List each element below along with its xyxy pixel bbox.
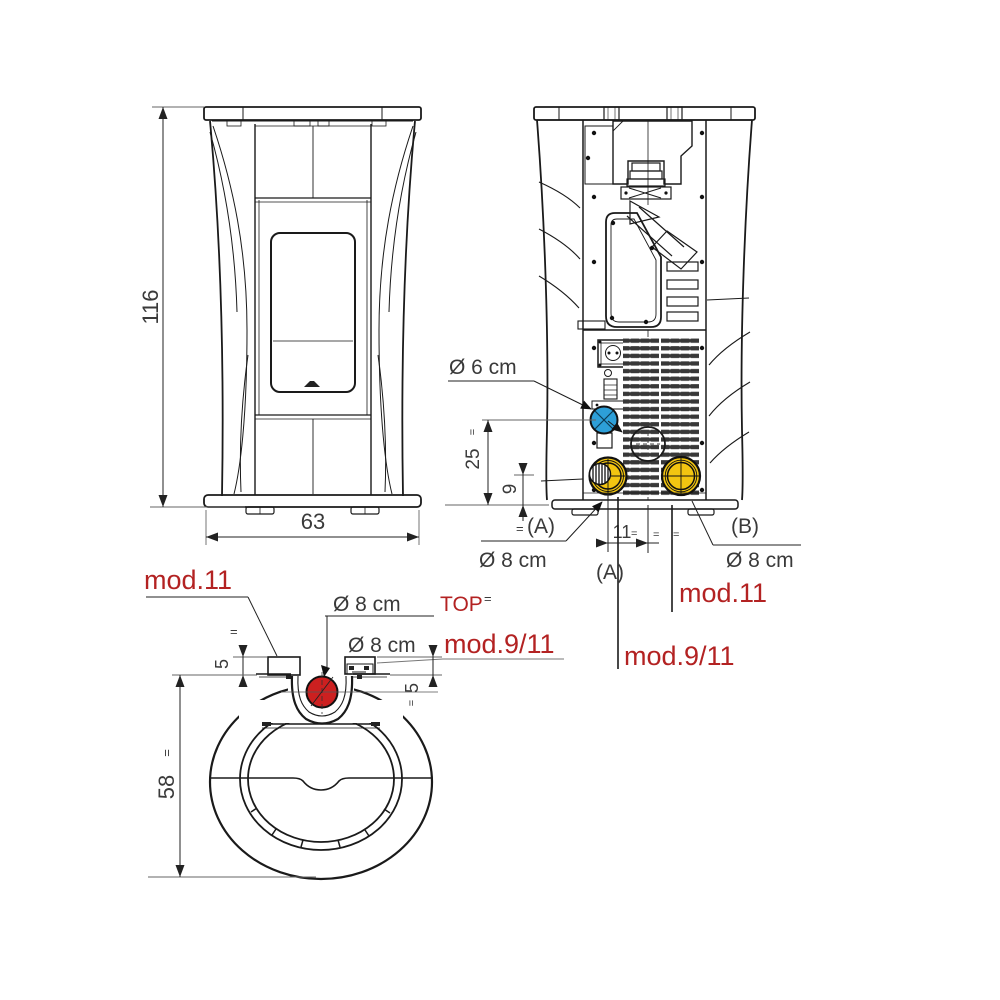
label-top-outlet-diameter: Ø 8 cm bbox=[333, 593, 401, 616]
dim-block-left: 5 bbox=[212, 659, 232, 669]
label-rear-outlet-diameter: Ø 8 cm bbox=[348, 634, 416, 657]
label-air-intake-diameter: Ø 6 cm bbox=[449, 356, 517, 379]
label-top-tag: TOP bbox=[440, 593, 483, 616]
top-split-line bbox=[210, 778, 432, 790]
flue-chute bbox=[652, 231, 697, 269]
eq-mark-11a: = bbox=[631, 528, 637, 540]
label-outlet-a: (A) bbox=[527, 515, 555, 538]
front-right-side bbox=[402, 121, 415, 496]
drawing-canvas: 116 63 bbox=[0, 0, 1000, 1000]
eq-mark-58: = bbox=[159, 749, 174, 757]
eq-mark-top: = bbox=[484, 591, 492, 606]
back-right-flank bbox=[742, 120, 752, 500]
back-base bbox=[552, 500, 738, 509]
eq-mark-5r: = bbox=[406, 700, 418, 706]
front-base bbox=[204, 495, 421, 507]
eq-mark-5l: = bbox=[230, 624, 238, 639]
eq-mark-11b: = bbox=[653, 529, 659, 541]
eq-mark-11c: = bbox=[673, 529, 679, 541]
door-logo bbox=[304, 381, 320, 387]
dim-block-right: 5 bbox=[402, 683, 422, 693]
label-outlet-b-diameter: Ø 8 cm bbox=[726, 549, 794, 572]
dim-offset-11: 11 bbox=[613, 522, 632, 542]
dim-front-height: 116 bbox=[138, 289, 163, 324]
stove-technical-drawing: 116 63 bbox=[0, 0, 1000, 1000]
label-outlet-b: (B) bbox=[731, 515, 759, 538]
label-mod911-back: mod.9/11 bbox=[624, 641, 735, 671]
back-view: 25 = 9 Ø 6 cm = (A) Ø 8 cm 11 = = = (A) … bbox=[445, 107, 801, 671]
flue-outlet-a bbox=[590, 458, 627, 495]
flue-outlet-b bbox=[662, 457, 700, 495]
firebox-glass bbox=[271, 233, 355, 392]
label-outlet-a2: (A) bbox=[596, 561, 624, 584]
hopper-outline bbox=[613, 121, 692, 184]
front-top-plate bbox=[204, 107, 421, 120]
label-mod911-top: mod.9/11 bbox=[444, 629, 555, 659]
label-mod11-back: mod.11 bbox=[679, 578, 767, 608]
back-left-flank bbox=[537, 120, 547, 500]
dim-flue-height: 9 bbox=[500, 484, 521, 495]
dim-front-width: 63 bbox=[301, 509, 325, 534]
label-outlet-a-diameter: Ø 8 cm bbox=[479, 549, 547, 572]
grille-left bbox=[623, 337, 659, 497]
back-top-plate bbox=[534, 107, 755, 120]
label-mod11-top: mod.11 bbox=[144, 565, 232, 595]
exchanger-panel bbox=[606, 213, 661, 327]
front-view: 116 63 bbox=[138, 107, 421, 545]
top-inner-ring-outer bbox=[240, 708, 402, 850]
eq-mark-a: = bbox=[516, 521, 524, 536]
top-inner-ring-inner bbox=[248, 716, 394, 842]
top-view: mod.11 Ø 8 cm TOP = Ø 8 cm mod.9/11 5 = … bbox=[144, 565, 564, 879]
dim-intake-height: 25 bbox=[463, 448, 484, 469]
eq-mark-25: = bbox=[467, 429, 479, 435]
auger-pipe bbox=[632, 163, 660, 171]
dim-depth: 58 bbox=[154, 775, 179, 799]
